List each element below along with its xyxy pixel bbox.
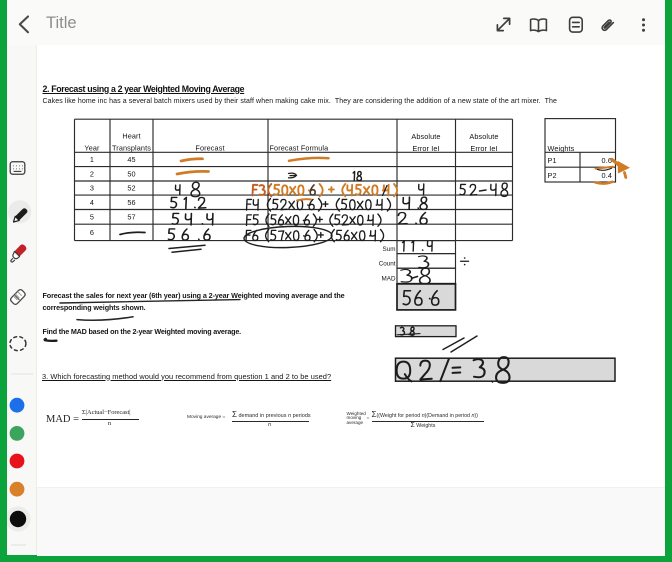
svg-text:57: 57 bbox=[127, 212, 135, 221]
svg-text:MAD: MAD bbox=[382, 275, 396, 282]
svg-text:0.4: 0.4 bbox=[602, 171, 612, 180]
svg-text:Error IeI: Error IeI bbox=[412, 144, 439, 153]
svg-text:5: 5 bbox=[90, 212, 94, 221]
svg-text:56: 56 bbox=[127, 198, 135, 207]
svg-text:1: 1 bbox=[90, 155, 94, 164]
svg-text:50: 50 bbox=[127, 169, 135, 178]
svg-text:Heart: Heart bbox=[122, 131, 140, 140]
svg-text:Absolute: Absolute bbox=[411, 132, 440, 141]
svg-text:Year: Year bbox=[84, 144, 100, 153]
svg-text:45: 45 bbox=[127, 155, 135, 164]
svg-text:Transplants: Transplants bbox=[112, 144, 151, 153]
svg-text:P1: P1 bbox=[548, 156, 557, 165]
svg-text:Forecast: Forecast bbox=[195, 144, 224, 153]
svg-text:Absolute: Absolute bbox=[469, 132, 498, 141]
svg-text:P2: P2 bbox=[548, 171, 557, 180]
svg-text:4: 4 bbox=[90, 198, 94, 207]
svg-text:Weights: Weights bbox=[548, 144, 575, 153]
svg-text:Sum: Sum bbox=[383, 246, 396, 253]
svg-text:2: 2 bbox=[90, 169, 94, 178]
svg-text:0.6: 0.6 bbox=[602, 156, 612, 165]
svg-text:3: 3 bbox=[90, 184, 94, 193]
svg-text:Forecast Formula: Forecast Formula bbox=[270, 144, 330, 153]
svg-text:6: 6 bbox=[90, 228, 94, 237]
svg-text:52: 52 bbox=[127, 184, 135, 193]
svg-text:Count: Count bbox=[379, 260, 396, 267]
svg-text:Error IeI: Error IeI bbox=[470, 144, 497, 153]
